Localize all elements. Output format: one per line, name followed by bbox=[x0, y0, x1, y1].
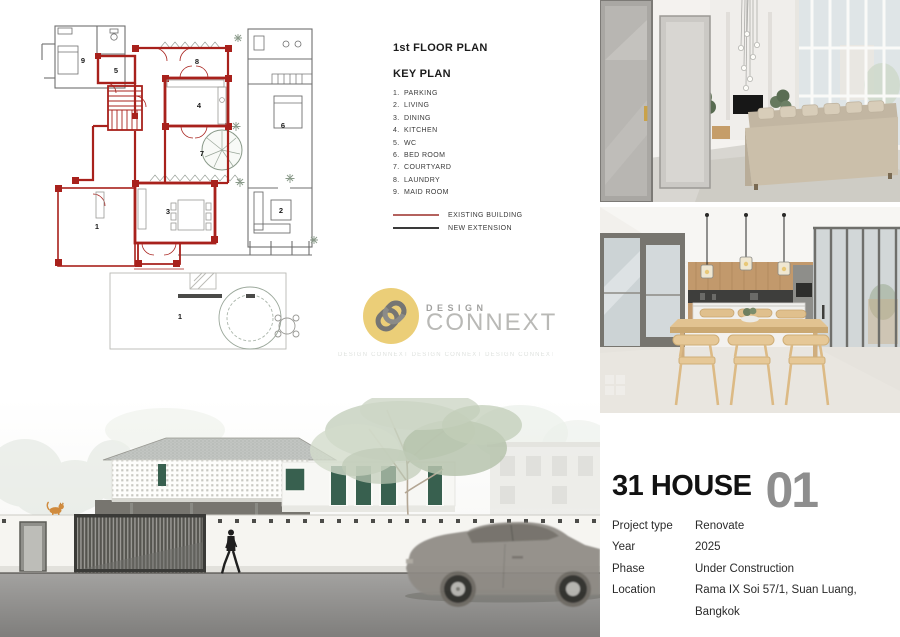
legend-new-extension: NEW EXTENSION bbox=[393, 222, 563, 235]
side-door bbox=[20, 522, 46, 571]
plan-existing-building-walls bbox=[58, 48, 228, 269]
project-title-row: 31 HOUSE 01 bbox=[612, 470, 896, 510]
svg-text:9: 9 bbox=[81, 56, 85, 65]
key-item: 5.WC bbox=[393, 138, 563, 150]
key-item: 7.COURTYARD bbox=[393, 162, 563, 174]
door-handle bbox=[822, 305, 825, 319]
info-row-location: Location Rama IX Soi 57/1, Suan Luang, B… bbox=[612, 580, 896, 623]
living-room-render bbox=[600, 0, 900, 202]
gold-door-handle bbox=[644, 106, 647, 121]
wing-base-band bbox=[282, 506, 455, 512]
key-item: 4.KITCHEN bbox=[393, 125, 563, 137]
plan-plant-symbols bbox=[232, 34, 319, 244]
svg-text:4: 4 bbox=[197, 101, 202, 110]
tiled-watermark-text: DESIGN CONNEXT DESIGN CONNEXT DESIGN CON… bbox=[338, 352, 553, 358]
street-elevation-render bbox=[0, 398, 600, 637]
key-item: 3.DINING bbox=[393, 113, 563, 125]
key-item: 8.LAUNDRY bbox=[393, 175, 563, 187]
svg-text:8: 8 bbox=[195, 57, 199, 66]
key-plan-heading: KEY PLAN bbox=[393, 68, 563, 80]
plan-gate-bar bbox=[178, 294, 222, 298]
sectional-sofa bbox=[745, 101, 898, 190]
facade-slot-window bbox=[158, 464, 166, 486]
svg-text:6: 6 bbox=[281, 121, 285, 130]
driveway-gate bbox=[74, 514, 206, 573]
centerpiece-bowl bbox=[741, 316, 759, 323]
project-index-number: 01 bbox=[765, 470, 817, 510]
svg-text:5: 5 bbox=[114, 66, 118, 75]
svg-text:1: 1 bbox=[178, 312, 182, 321]
info-row-year: Year 2025 bbox=[612, 537, 896, 558]
legend-existing-building: EXISTING BUILDING bbox=[393, 209, 563, 222]
oven bbox=[796, 283, 812, 297]
glass-door-inner bbox=[660, 16, 710, 188]
plan-gate-bar-2 bbox=[246, 294, 255, 298]
design-connext-watermark: DESIGN CONNEXT bbox=[362, 287, 557, 345]
plan-title: 1st FLOOR PLAN bbox=[393, 42, 563, 54]
svg-text:7: 7 bbox=[200, 149, 204, 158]
dining-room-render bbox=[600, 207, 900, 413]
project-info-panel: 31 HOUSE 01 Project type Renovate Year 2… bbox=[612, 470, 896, 623]
floor-plan-drawing: 9 5 8 4 6 7 1 3 2 1 bbox=[28, 4, 338, 396]
svg-text:2: 2 bbox=[279, 206, 283, 215]
svg-text:1: 1 bbox=[95, 222, 99, 231]
project-info-table: Project type Renovate Year 2025 Phase Un… bbox=[612, 516, 896, 623]
living-room-illustration bbox=[600, 0, 900, 202]
key-item: 2.LIVING bbox=[393, 100, 563, 112]
dining-room-illustration bbox=[600, 207, 900, 413]
svg-text:3: 3 bbox=[166, 207, 170, 216]
perforated-facade bbox=[112, 460, 308, 501]
plan-legend: EXISTING BUILDING NEW EXTENSION bbox=[393, 209, 563, 235]
logo-word-connext: CONNEXT bbox=[426, 313, 557, 333]
facade-ledge bbox=[112, 498, 308, 502]
info-row-phase: Phase Under Construction bbox=[612, 559, 896, 580]
key-plan-list: 1.PARKING 2.LIVING 3.DINING 4.KITCHEN 5.… bbox=[393, 88, 563, 200]
plan-courtyard-tree bbox=[202, 130, 242, 170]
key-item: 1.PARKING bbox=[393, 88, 563, 100]
wood-crate bbox=[712, 126, 730, 139]
design-connext-logo-text: DESIGN CONNEXT bbox=[426, 303, 557, 333]
key-item: 9.MAID ROOM bbox=[393, 187, 563, 199]
glass-door-left bbox=[600, 0, 652, 202]
legend-existing-swatch bbox=[393, 214, 439, 216]
key-item: 6.BED ROOM bbox=[393, 150, 563, 162]
plan-courtyard-lines bbox=[110, 273, 299, 349]
info-row-project-type: Project type Renovate bbox=[612, 516, 896, 537]
presentation-board: 9 5 8 4 6 7 1 3 2 1 1st FLOOR PLAN KEY P… bbox=[0, 0, 900, 637]
project-title: 31 HOUSE bbox=[612, 470, 751, 502]
legend-extension-swatch bbox=[393, 227, 439, 229]
carport-shadow bbox=[95, 500, 310, 515]
window-band-left bbox=[600, 233, 685, 353]
key-plan-panel: 1st FLOOR PLAN KEY PLAN 1.PARKING 2.LIVI… bbox=[393, 42, 563, 235]
design-connext-logo-icon bbox=[362, 287, 420, 345]
